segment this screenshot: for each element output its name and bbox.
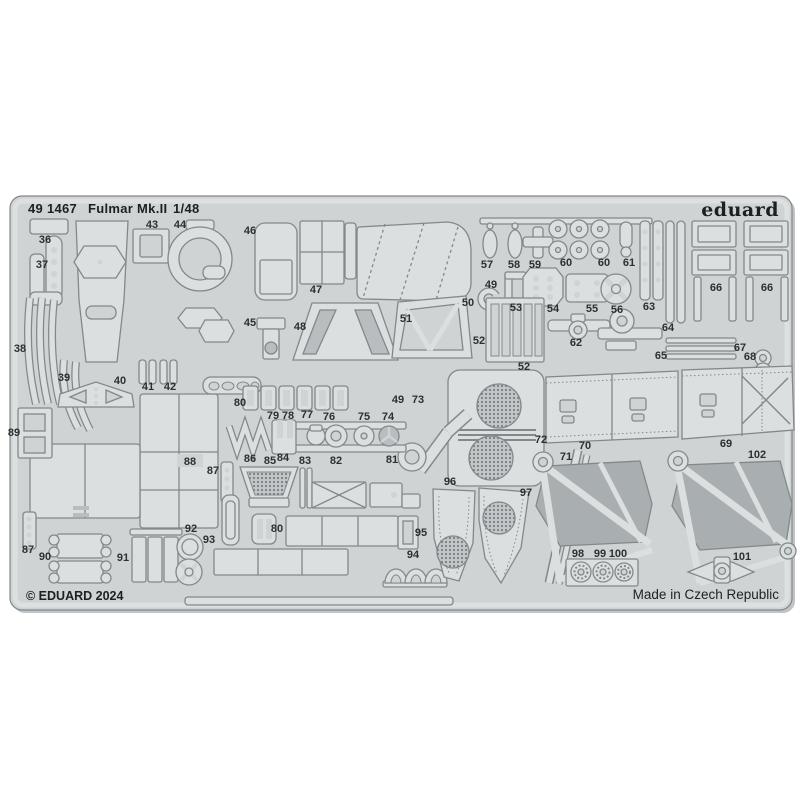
part-number-label: 68 bbox=[744, 351, 756, 363]
pe-part-shape bbox=[57, 534, 103, 558]
pe-part-shape bbox=[225, 468, 230, 473]
part-number-label: 101 bbox=[733, 551, 751, 563]
pe-part-shape bbox=[214, 549, 348, 575]
pe-part-shape bbox=[286, 516, 398, 546]
pe-part-shape bbox=[617, 316, 627, 326]
pe-part-shape bbox=[222, 495, 239, 545]
pe-part-shape bbox=[51, 259, 57, 265]
part-number-label: 75 bbox=[358, 411, 370, 423]
pe-part-shape bbox=[656, 246, 661, 251]
pe-part-shape bbox=[370, 483, 402, 507]
pe-part-shape bbox=[257, 519, 263, 539]
pe-part-shape bbox=[508, 230, 522, 258]
pe-part-shape bbox=[674, 457, 683, 466]
pe-part-shape bbox=[94, 387, 98, 391]
pe-part-shape bbox=[209, 382, 219, 390]
pe-part-shape bbox=[694, 277, 701, 321]
pe-part-shape bbox=[247, 472, 291, 495]
photo-etch-sheet-page: 3637383940414243444546474849495051525253… bbox=[0, 0, 800, 800]
part-number-label: 69 bbox=[720, 438, 732, 450]
pe-part-shape bbox=[265, 342, 277, 354]
pe-part-shape bbox=[222, 382, 234, 390]
pe-part-shape bbox=[656, 278, 661, 283]
pe-part-shape bbox=[49, 535, 59, 545]
pe-part-shape bbox=[729, 277, 736, 321]
pe-part-shape bbox=[630, 398, 646, 410]
part-number-label: 38 bbox=[14, 343, 26, 355]
part-number-label: 36 bbox=[39, 234, 51, 246]
part-number-label: 70 bbox=[579, 440, 591, 452]
pe-part-shape bbox=[300, 468, 305, 508]
pe-part-shape bbox=[405, 450, 419, 464]
pe-part-shape bbox=[594, 280, 600, 286]
part-number-label: 64 bbox=[662, 322, 675, 334]
pe-part-shape bbox=[437, 536, 469, 568]
pe-part-shape bbox=[283, 390, 290, 406]
pe-part-shape bbox=[556, 227, 561, 232]
pe-part-shape bbox=[682, 366, 794, 439]
part-number-label: 83 bbox=[299, 455, 311, 467]
part-number-label: 92 bbox=[185, 523, 197, 535]
part-number-label: 59 bbox=[529, 259, 541, 271]
part-number-label: 73 bbox=[412, 394, 424, 406]
pe-part-shape bbox=[547, 276, 553, 282]
part-number-label: 48 bbox=[294, 321, 306, 333]
pe-part-shape bbox=[101, 547, 111, 557]
pe-part-shape bbox=[247, 390, 254, 406]
part-number-label: 71 bbox=[560, 451, 572, 463]
part-number-label: 90 bbox=[39, 551, 51, 563]
pe-part-shape bbox=[225, 477, 230, 482]
pe-part-shape bbox=[574, 280, 580, 286]
pe-part-shape bbox=[523, 237, 553, 247]
pe-part-shape bbox=[257, 318, 285, 329]
pe-part-shape bbox=[402, 494, 420, 508]
pe-part-shape bbox=[666, 346, 736, 351]
pe-part-shape bbox=[533, 276, 539, 282]
pe-part-shape bbox=[533, 285, 539, 291]
pe-part-shape bbox=[700, 394, 716, 406]
pe-part-shape bbox=[612, 285, 621, 294]
pe-part-shape bbox=[51, 271, 57, 277]
pe-part-shape bbox=[469, 436, 513, 480]
part-number-label: 78 bbox=[282, 410, 294, 422]
part-number-label: 87 bbox=[22, 544, 34, 556]
pe-part-shape bbox=[27, 525, 32, 530]
part-number-label: 58 bbox=[508, 259, 520, 271]
part-number-label: 55 bbox=[586, 303, 598, 315]
part-number-label: 49 bbox=[485, 279, 497, 291]
pe-part-shape bbox=[666, 338, 736, 343]
pe-part-shape bbox=[598, 227, 603, 232]
part-number-label: 40 bbox=[114, 375, 126, 387]
pe-part-shape bbox=[598, 248, 603, 253]
part-number-label: 98 bbox=[572, 548, 584, 560]
pe-part-shape bbox=[547, 285, 553, 291]
part-number-label: 81 bbox=[386, 454, 398, 466]
pe-part-shape bbox=[562, 416, 574, 423]
made-in-text: Made in Czech Republic bbox=[633, 587, 780, 602]
part-number-label: 65 bbox=[655, 350, 667, 362]
pe-part-shape bbox=[94, 401, 98, 405]
sheet-scale: 1/48 bbox=[173, 201, 200, 216]
part-number-label: 84 bbox=[277, 452, 290, 464]
pe-part-shape bbox=[483, 230, 497, 258]
part-number-label: 72 bbox=[535, 434, 547, 446]
pe-part-shape bbox=[539, 458, 548, 467]
pe-part-shape bbox=[487, 223, 493, 229]
pe-part-shape bbox=[643, 246, 648, 251]
pe-part-shape bbox=[101, 573, 111, 583]
part-number-label: 52 bbox=[518, 361, 530, 373]
pe-part-shape bbox=[577, 227, 582, 232]
pe-part-shape bbox=[491, 304, 499, 356]
pe-part-shape bbox=[621, 247, 631, 257]
pe-part-shape bbox=[177, 534, 203, 560]
part-number-label: 62 bbox=[570, 337, 582, 349]
copyright-text: © EDUARD 2024 bbox=[26, 589, 123, 603]
part-number-label: 99 bbox=[594, 548, 606, 560]
part-number-label: 77 bbox=[301, 409, 313, 421]
pe-part-shape bbox=[345, 223, 356, 279]
pe-part-shape bbox=[301, 390, 308, 406]
pe-part-shape bbox=[310, 425, 322, 431]
pe-part-shape bbox=[620, 222, 632, 248]
pe-part-shape bbox=[574, 292, 580, 298]
pe-part-shape bbox=[27, 533, 32, 538]
part-number-label: 56 bbox=[611, 304, 623, 316]
pe-part-shape bbox=[319, 390, 326, 406]
pe-part-shape bbox=[643, 230, 648, 235]
part-number-label: 61 bbox=[623, 257, 635, 269]
part-number-label: 60 bbox=[560, 257, 572, 269]
pe-part-shape bbox=[677, 221, 685, 323]
pe-part-shape bbox=[632, 414, 644, 421]
pe-part-shape bbox=[199, 320, 234, 342]
sheet-title: Fulmar Mk.II bbox=[88, 201, 167, 216]
part-number-label: 79 bbox=[267, 410, 279, 422]
pe-part-shape bbox=[277, 420, 283, 438]
pe-part-shape bbox=[600, 569, 606, 575]
part-number-label: 97 bbox=[520, 487, 532, 499]
pe-part-shape bbox=[225, 486, 230, 491]
part-number-label: 45 bbox=[244, 317, 256, 329]
part-number-label: 46 bbox=[244, 225, 256, 237]
pe-part-shape bbox=[73, 506, 89, 510]
part-number-label: 88 bbox=[184, 456, 196, 468]
part-number-label: 76 bbox=[323, 411, 335, 423]
pe-part-shape bbox=[24, 437, 45, 453]
part-number-label: 54 bbox=[547, 303, 560, 315]
pe-part-shape bbox=[512, 223, 518, 229]
part-number-label: 44 bbox=[174, 219, 187, 231]
part-number-label: 94 bbox=[407, 549, 420, 561]
pe-part-shape bbox=[535, 304, 542, 356]
pe-part-shape bbox=[27, 517, 32, 522]
pe-part-shape bbox=[94, 394, 98, 398]
pe-part-shape bbox=[560, 400, 576, 412]
part-number-label: 41 bbox=[142, 381, 154, 393]
pe-part-shape bbox=[98, 260, 103, 265]
pe-part-shape bbox=[30, 219, 68, 234]
pe-part-shape bbox=[337, 390, 344, 406]
pe-part-shape bbox=[606, 341, 636, 350]
pe-part-shape bbox=[760, 355, 767, 362]
part-number-label: 51 bbox=[400, 313, 412, 325]
sheet-catalog-number: 49 1467 bbox=[28, 201, 77, 216]
pe-part-shape bbox=[578, 569, 584, 575]
pe-part-shape bbox=[255, 223, 297, 300]
pe-part-shape bbox=[502, 304, 510, 356]
pe-part-shape bbox=[656, 262, 661, 267]
pe-part-shape bbox=[524, 304, 532, 356]
pe-part-shape bbox=[265, 390, 272, 406]
pe-part-shape bbox=[574, 326, 582, 334]
pe-part-shape bbox=[51, 283, 57, 289]
part-number-label: 66 bbox=[710, 282, 722, 294]
pe-part-shape bbox=[148, 537, 162, 582]
pe-part-shape bbox=[781, 277, 788, 321]
pe-part-shape bbox=[666, 354, 736, 359]
pe-part-shape bbox=[666, 221, 674, 323]
part-number-label: 96 bbox=[444, 476, 456, 488]
pe-part-shape bbox=[307, 468, 312, 508]
pe-part-shape bbox=[24, 414, 45, 431]
pe-part-shape bbox=[594, 292, 600, 298]
part-number-label: 43 bbox=[146, 219, 158, 231]
pe-part-shape bbox=[785, 548, 792, 555]
pe-part-shape bbox=[357, 222, 471, 301]
part-number-label: 53 bbox=[510, 302, 522, 314]
pe-part-shape bbox=[643, 278, 648, 283]
part-number-label: 52 bbox=[473, 335, 485, 347]
pe-part-shape bbox=[656, 230, 661, 235]
pe-part-shape bbox=[556, 248, 561, 253]
part-number-label: 93 bbox=[203, 534, 215, 546]
part-number-label: 66 bbox=[761, 282, 773, 294]
part-number-label: 42 bbox=[164, 381, 176, 393]
part-number-label: 89 bbox=[8, 427, 20, 439]
part-number-label: 47 bbox=[310, 284, 322, 296]
part-number-label: 50 bbox=[462, 297, 474, 309]
part-number-label: 60 bbox=[598, 257, 610, 269]
pe-part-shape bbox=[101, 561, 111, 571]
pe-part-shape bbox=[403, 521, 413, 544]
pe-part-shape bbox=[140, 235, 162, 257]
pe-part-shape bbox=[185, 568, 193, 576]
pe-part-shape bbox=[51, 247, 57, 253]
pe-part-shape bbox=[331, 431, 341, 441]
part-number-label: 63 bbox=[643, 301, 655, 313]
pe-part-shape bbox=[621, 569, 627, 575]
pe-part-shape bbox=[719, 568, 726, 575]
pe-part-shape bbox=[547, 294, 553, 300]
part-number-label: 39 bbox=[58, 372, 70, 384]
pe-part-shape bbox=[86, 306, 116, 319]
pe-part-shape bbox=[249, 498, 289, 507]
part-number-label: 37 bbox=[36, 259, 48, 271]
pe-part-shape bbox=[702, 410, 714, 417]
pe-part-shape bbox=[287, 420, 293, 438]
part-number-label: 87 bbox=[207, 465, 219, 477]
pe-part-shape bbox=[361, 433, 367, 439]
pe-part-shape bbox=[577, 248, 582, 253]
pe-part-shape bbox=[49, 573, 59, 583]
part-number-label: 82 bbox=[330, 455, 342, 467]
pe-part-shape bbox=[643, 262, 648, 267]
part-number-label: 100 bbox=[609, 548, 627, 560]
pe-part-shape bbox=[130, 529, 182, 535]
pe-part-shape bbox=[483, 502, 515, 534]
part-number-label: 74 bbox=[382, 411, 395, 423]
part-number-label: 80 bbox=[271, 523, 283, 535]
part-number-label: 91 bbox=[117, 552, 129, 564]
part-number-label: 85 bbox=[264, 455, 276, 467]
pe-part-shape bbox=[73, 513, 89, 517]
pe-part-shape bbox=[185, 597, 453, 605]
part-number-label: 80 bbox=[234, 397, 246, 409]
brand-logo: eduard bbox=[701, 199, 779, 221]
part-number-label: 102 bbox=[748, 449, 766, 461]
pe-part-shape bbox=[132, 537, 146, 582]
pe-part-shape bbox=[391, 492, 397, 498]
pe-part-shape bbox=[101, 535, 111, 545]
pe-part-shape bbox=[746, 277, 753, 321]
part-number-label: 86 bbox=[244, 453, 256, 465]
part-number-label: 95 bbox=[415, 527, 427, 539]
pe-part-shape bbox=[57, 561, 103, 583]
part-number-label: 57 bbox=[481, 259, 493, 271]
pe-part-shape bbox=[203, 266, 225, 279]
pe-sheet-photo: 3637383940414243444546474849495051525253… bbox=[0, 0, 800, 800]
pe-part-shape bbox=[477, 384, 521, 428]
part-number-label: 49 bbox=[392, 394, 404, 406]
